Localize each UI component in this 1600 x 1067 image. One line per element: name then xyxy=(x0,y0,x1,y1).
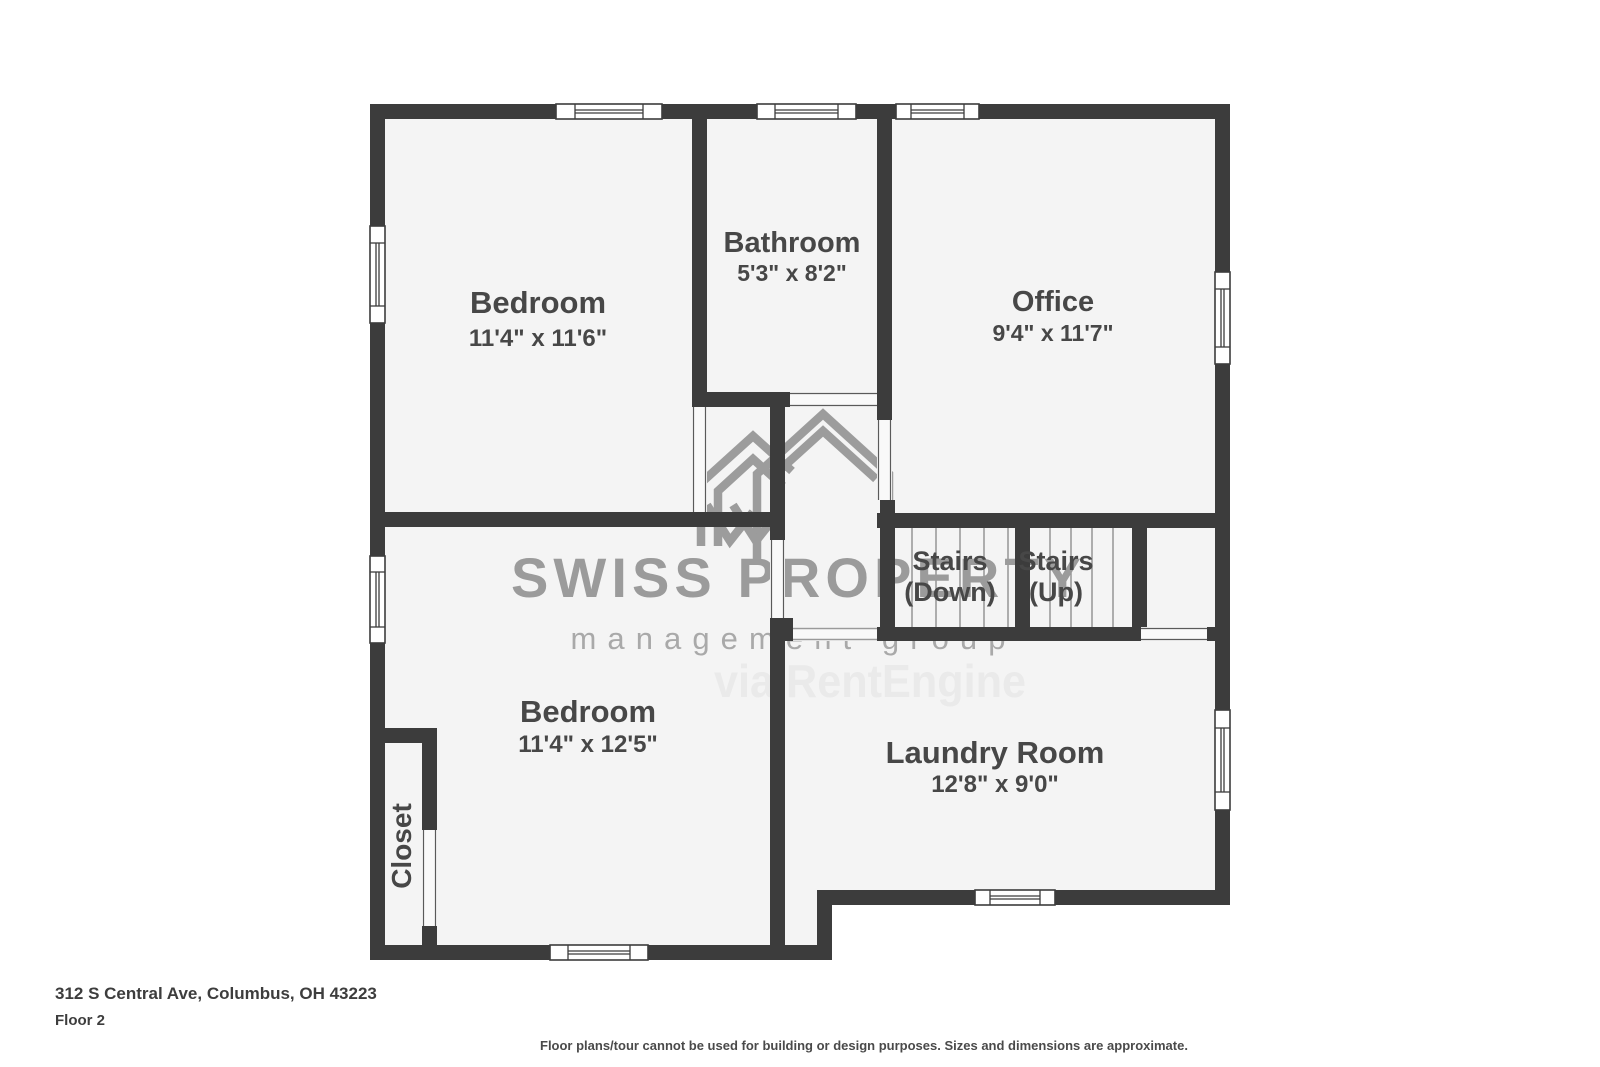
wall-hallway-left-lower xyxy=(770,618,785,960)
disclaimer-text: Floor plans/tour cannot be used for buil… xyxy=(540,1038,1060,1053)
bedroom-bottom-label: Bedroom xyxy=(520,694,656,729)
floorplan-page: SWISS PROPERTY management group via Rent… xyxy=(0,0,1600,1067)
door-opening-bedroom-top xyxy=(692,407,707,512)
window-bedroom-bottom-south xyxy=(550,945,648,960)
door-opening-landing-laundry xyxy=(1141,627,1207,641)
wall-bathroom-office xyxy=(877,104,892,420)
wall-stairs-landing-divider xyxy=(1132,513,1147,641)
wall-hallway-left-upper xyxy=(770,400,785,540)
bathroom-label: Bathroom xyxy=(724,227,861,259)
bedroom-top-dims: 11'4" x 11'6" xyxy=(469,325,607,352)
wall-closet-right-upper xyxy=(422,728,437,830)
door-opening-bathroom xyxy=(790,392,877,407)
bedroom-top-label: Bedroom xyxy=(470,285,606,320)
wall-hallway-corner-stub xyxy=(770,618,793,641)
stairs-up-sub: (Up) xyxy=(1029,577,1083,607)
stairs-up-label: Stairs xyxy=(1018,546,1093,576)
door-opening-closet xyxy=(422,830,437,926)
window-office-east xyxy=(1215,272,1230,364)
wall-stairs-bottom-stub xyxy=(1207,627,1230,641)
door-opening-stairs-hall xyxy=(877,420,892,500)
wall-stairs-bottom xyxy=(877,627,1141,641)
wall-stairs-top xyxy=(877,513,1230,528)
wall-bedroom-bathroom xyxy=(692,104,707,407)
door-opening-bedroom-bottom xyxy=(770,540,785,618)
wall-bottom-step xyxy=(817,890,832,960)
window-bedroom-top-west xyxy=(370,226,385,323)
wall-closet-right-lower xyxy=(422,926,437,952)
window-laundry-south xyxy=(975,890,1055,905)
watermark-via: via RentEngine xyxy=(714,655,1026,707)
floorplan-canvas: SWISS PROPERTY management group via Rent… xyxy=(0,0,1600,1067)
wall-stairs-divider xyxy=(1015,513,1030,641)
property-address: 312 S Central Ave, Columbus, OH 43223 xyxy=(55,984,377,1004)
office-dims: 9'4" x 11'7" xyxy=(992,320,1113,346)
stairs-down-label: Stairs xyxy=(912,546,987,576)
window-bathroom-north xyxy=(757,104,856,119)
bedroom-bottom-dims: 11'4" x 12'5" xyxy=(518,731,658,758)
window-office-north xyxy=(896,104,979,119)
office-label: Office xyxy=(1012,286,1094,318)
closet-label: Closet xyxy=(386,803,417,889)
window-bedroom-top-north xyxy=(556,104,662,119)
passage-hallway-laundry xyxy=(793,627,877,641)
window-bedroom-bottom-west xyxy=(370,556,385,643)
stairs-down-sub: (Down) xyxy=(904,577,995,607)
floor-number-label: Floor 2 xyxy=(55,1012,105,1029)
bathroom-dims: 5'3" x 8'2" xyxy=(737,260,847,286)
window-laundry-east xyxy=(1215,710,1230,810)
laundry-label: Laundry Room xyxy=(886,735,1105,770)
wall-bedrooms-divider xyxy=(370,512,785,527)
laundry-dims: 12'8" x 9'0" xyxy=(931,771,1059,798)
